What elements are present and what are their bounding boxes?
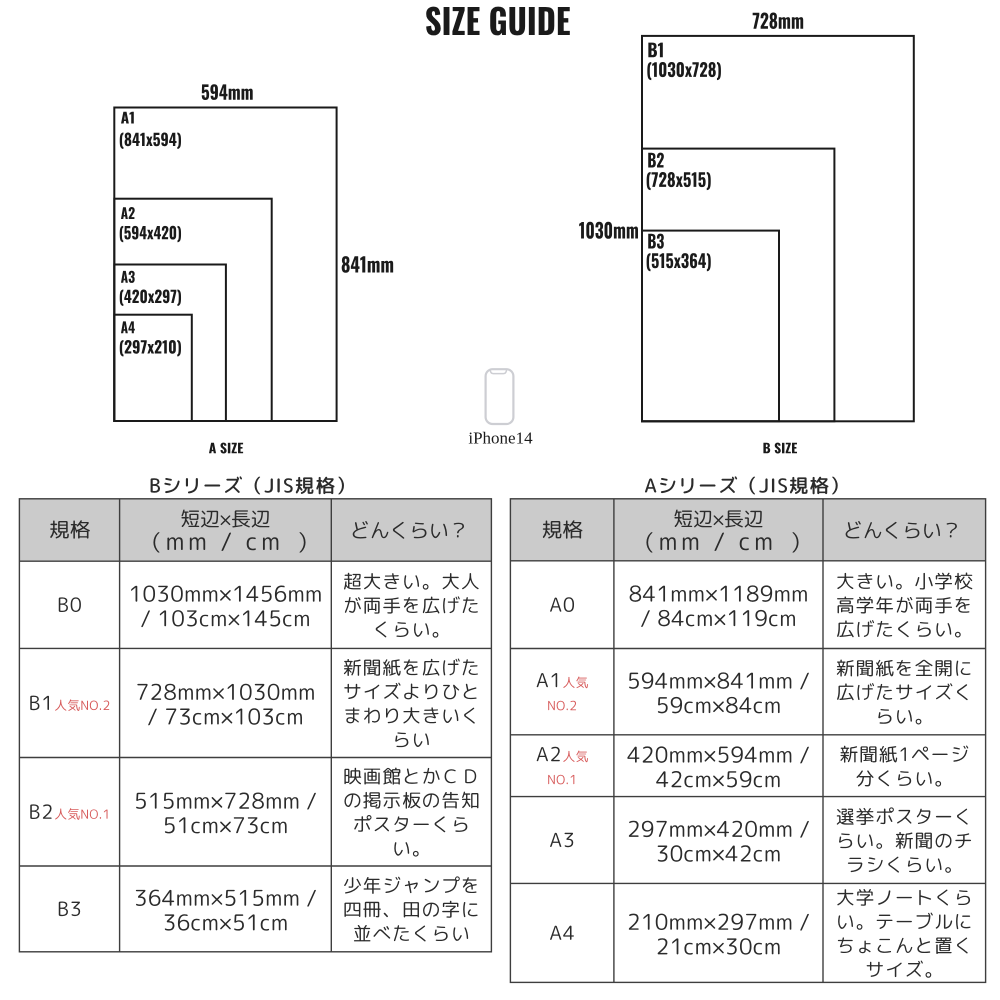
svg-text:iPhone14: iPhone14 [468,429,533,448]
